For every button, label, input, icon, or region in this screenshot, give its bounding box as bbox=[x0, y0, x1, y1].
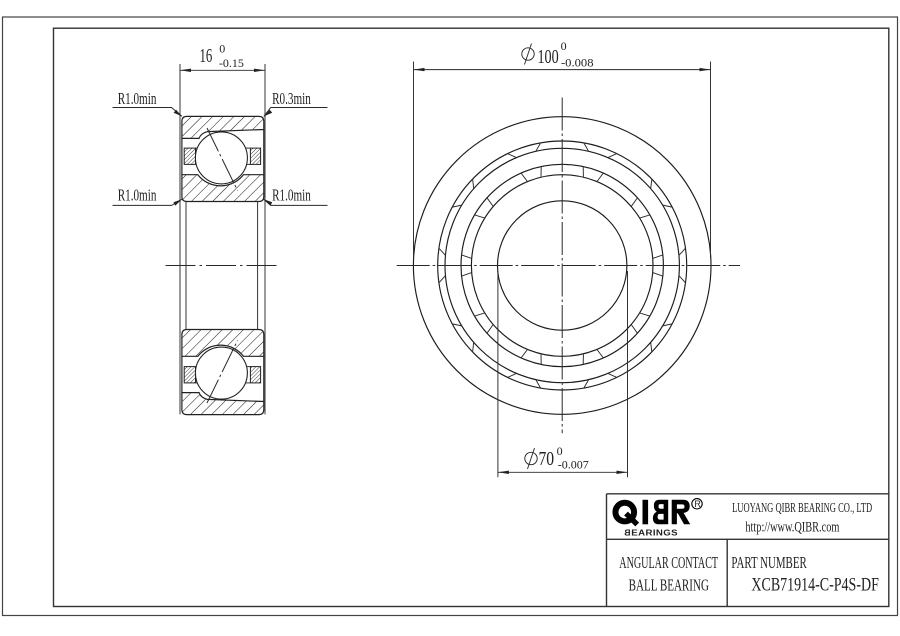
svg-text:XCB71914-C-P4S-DF: XCB71914-C-P4S-DF bbox=[751, 573, 878, 595]
svg-text:R: R bbox=[694, 499, 701, 509]
svg-text:-0.008: -0.008 bbox=[561, 56, 594, 70]
svg-text:-0.007: -0.007 bbox=[558, 458, 589, 472]
svg-text:BALL BEARING: BALL BEARING bbox=[629, 576, 709, 595]
svg-text:70: 70 bbox=[539, 447, 555, 469]
svg-text:0: 0 bbox=[219, 41, 225, 55]
svg-text:R0.3min: R0.3min bbox=[272, 91, 311, 109]
svg-text:EARINGS: EARINGS bbox=[631, 528, 678, 537]
svg-text:R1.0min: R1.0min bbox=[272, 188, 311, 206]
svg-text:B: B bbox=[624, 527, 630, 537]
svg-text:PART NUMBER: PART NUMBER bbox=[731, 554, 807, 573]
svg-text:ANGULAR CONTACT: ANGULAR CONTACT bbox=[619, 555, 718, 573]
svg-text:-0.15: -0.15 bbox=[219, 56, 244, 70]
svg-text:R1.0min: R1.0min bbox=[118, 91, 157, 109]
svg-text:0: 0 bbox=[561, 39, 567, 53]
svg-text:LUOYANG QIBR BEARING CO., LTD: LUOYANG QIBR BEARING CO., LTD bbox=[732, 500, 872, 516]
svg-text:100: 100 bbox=[538, 46, 559, 68]
svg-text:0: 0 bbox=[557, 444, 563, 458]
svg-text:16: 16 bbox=[199, 44, 212, 66]
svg-text:R1.0min: R1.0min bbox=[118, 188, 157, 206]
svg-text:http://www.QIBR.com: http://www.QIBR.com bbox=[745, 519, 839, 535]
